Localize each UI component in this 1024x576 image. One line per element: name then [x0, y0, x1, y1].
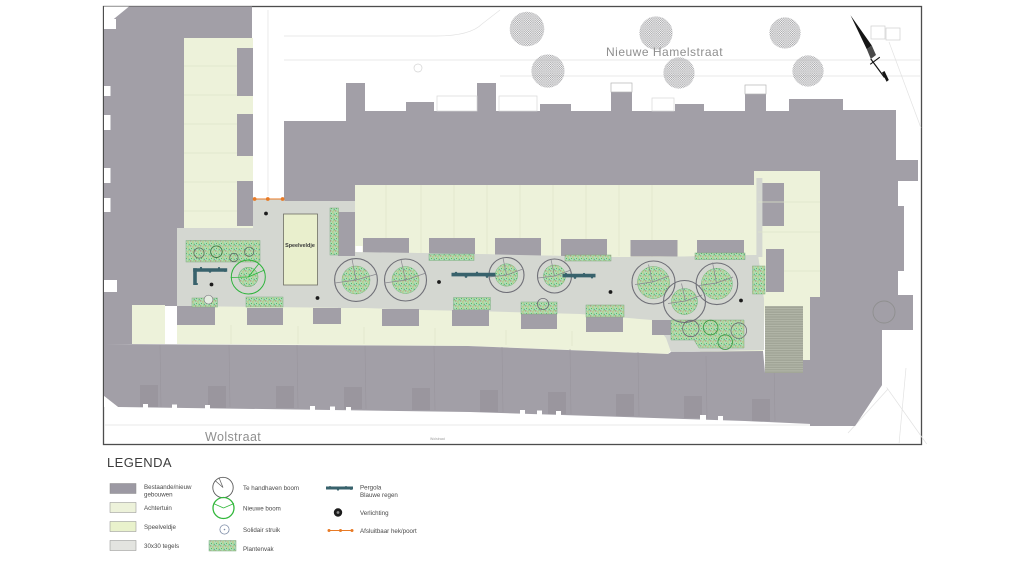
- svg-text:Plantenvak: Plantenvak: [243, 546, 275, 553]
- svg-text:Te handhaven boom: Te handhaven boom: [243, 485, 299, 492]
- svg-text:Blauwe regen: Blauwe regen: [360, 492, 398, 499]
- svg-text:Wolstraat: Wolstraat: [430, 437, 445, 441]
- svg-text:Achtertuin: Achtertuin: [144, 505, 172, 512]
- svg-text:Nieuwe Hamelstraat: Nieuwe Hamelstraat: [606, 45, 723, 59]
- svg-text:LEGENDA: LEGENDA: [107, 455, 172, 470]
- svg-text:30x30 tegels: 30x30 tegels: [144, 543, 179, 550]
- svg-text:Nieuwe boom: Nieuwe boom: [243, 506, 281, 513]
- svg-text:gebouwen: gebouwen: [144, 492, 173, 499]
- svg-text:Solidair struik: Solidair struik: [243, 527, 281, 534]
- svg-text:Speelveldje: Speelveldje: [144, 524, 177, 531]
- svg-text:Verlichting: Verlichting: [360, 510, 389, 517]
- svg-text:Bestaande/nieuw: Bestaande/nieuw: [144, 484, 192, 491]
- svg-text:Pergola: Pergola: [360, 485, 382, 492]
- svg-text:Afsluitbaar hek/poort: Afsluitbaar hek/poort: [360, 528, 417, 535]
- svg-text:Speelveldje: Speelveldje: [285, 243, 315, 249]
- svg-text:Wolstraat: Wolstraat: [205, 430, 261, 444]
